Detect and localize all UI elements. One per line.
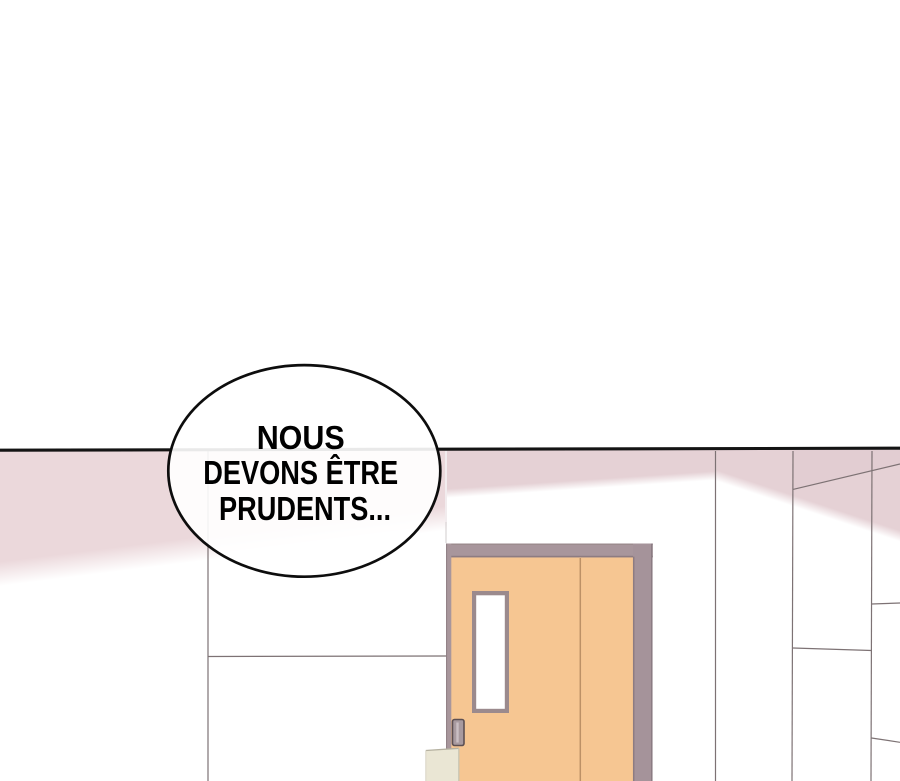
svg-text:PRUDENTS...: PRUDENTS... [219, 491, 391, 528]
svg-text:DEVONS ÊTRE: DEVONS ÊTRE [203, 454, 398, 492]
svg-text:NOUS: NOUS [257, 420, 345, 457]
